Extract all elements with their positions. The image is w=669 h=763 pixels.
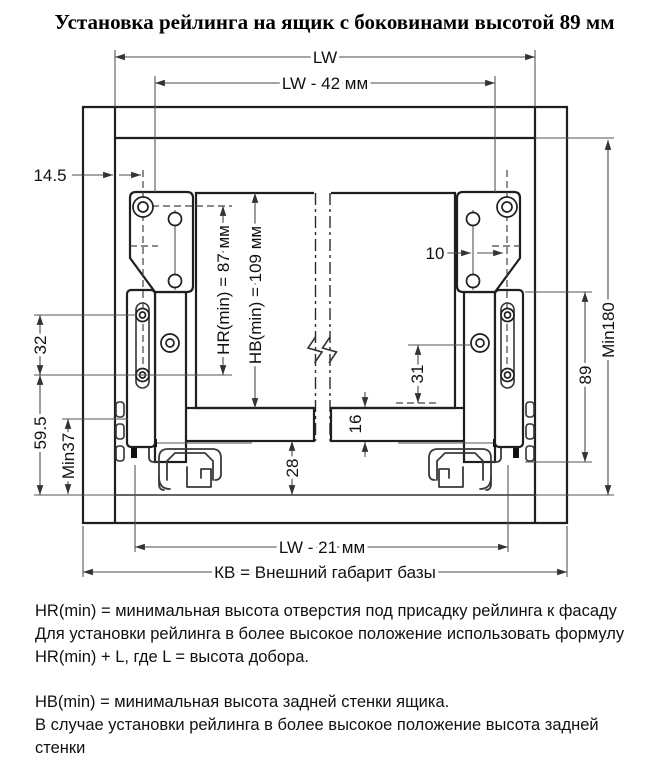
dim-hb-min-label: HB(min) = 109 мм <box>246 226 265 364</box>
dim-lw-minus-42-label: LW - 42 мм <box>282 74 368 93</box>
right-side-panel <box>464 292 495 462</box>
dim-lw-minus-42: LW - 42 мм <box>155 74 495 93</box>
hr-note-line: HR(min) + L, где L = высота добора. <box>35 646 650 669</box>
dim-hb-min: HB(min) = 109 мм <box>246 193 265 408</box>
dim-89: 89 <box>576 292 595 462</box>
drawer-back-panel <box>196 193 455 441</box>
dim-14-5-label: 14.5 <box>33 166 66 185</box>
hr-note-line: Для установки рейлинга в более высокое п… <box>35 623 650 646</box>
bracket-hole <box>169 213 182 226</box>
dim-kv-label: КВ = Внешний габарит базы <box>214 563 436 582</box>
slide-mount-tab <box>116 446 124 461</box>
extension-lines <box>34 50 614 577</box>
dim-32: 32 <box>31 315 50 375</box>
dim-lw: LW <box>115 48 535 67</box>
hb-note: HB(min) = минимальная высота задней стен… <box>35 691 650 763</box>
slide-mount-tab <box>116 424 124 439</box>
dim-31: 31 <box>408 345 427 403</box>
assembly-drawing: LW LW - 42 мм 14.5 10 HR(min) = 87 мм <box>0 0 669 592</box>
dim-min37: Min37 <box>59 419 78 494</box>
left-side-panel <box>155 292 186 462</box>
dim-hr-min-label: HR(min) = 87 мм <box>214 225 233 355</box>
page: Установка рейлинга на ящик с боковинами … <box>0 0 669 763</box>
notes: HR(min) = минимальная высота отверстия п… <box>35 600 650 763</box>
dim-31-label: 31 <box>408 365 427 384</box>
dim-28: 28 <box>283 441 302 495</box>
axis-lines <box>143 84 507 403</box>
dim-lw-label: LW <box>313 48 337 67</box>
bracket-hole <box>467 275 480 288</box>
dim-32-label: 32 <box>31 336 50 355</box>
dim-16: 16 <box>346 392 365 457</box>
dim-14-5: 14.5 <box>33 166 141 185</box>
dim-59-5: 59.5 <box>31 375 50 495</box>
dim-min180-label: Min180 <box>599 302 618 358</box>
dim-28-label: 28 <box>283 459 302 478</box>
dim-lw-minus-21: LW - 21 мм <box>135 538 508 557</box>
dim-10-label: 10 <box>426 244 445 263</box>
bracket-hole <box>467 213 480 226</box>
dim-16-label: 16 <box>346 415 365 434</box>
dim-59-5-label: 59.5 <box>31 416 50 449</box>
slide-mount-tab <box>116 402 124 417</box>
dim-89-label: 89 <box>576 366 595 385</box>
dim-hr-min: HR(min) = 87 мм <box>214 206 233 375</box>
hb-note-line: В случае установки рейлинга в более высо… <box>35 714 650 760</box>
hr-note: HR(min) = минимальная высота отверстия п… <box>35 600 650 669</box>
dim-min180: Min180 <box>599 140 618 495</box>
dim-min37-label: Min37 <box>59 433 78 479</box>
hb-note-line: HB(min) = минимальная высота задней стен… <box>35 691 650 714</box>
dim-lw-minus-21-label: LW - 21 мм <box>279 538 365 557</box>
dim-kv: КВ = Внешний габарит базы <box>83 563 567 582</box>
bracket-hole <box>169 275 182 288</box>
hr-note-line: HR(min) = минимальная высота отверстия п… <box>35 600 650 623</box>
